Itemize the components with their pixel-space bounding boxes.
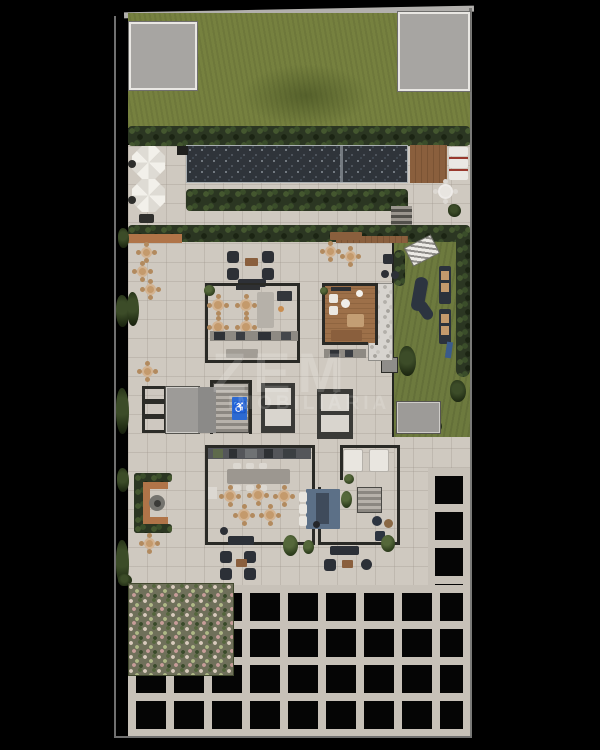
pouf [381,270,389,278]
counter-item [283,449,296,458]
chair [153,369,158,374]
chair [233,513,238,518]
dining-table [252,489,264,501]
chair [299,492,307,502]
chair [242,504,247,509]
chair [264,493,269,498]
chair [328,257,333,262]
coffee-table [342,560,353,568]
chair [443,179,448,184]
chair [233,485,241,491]
garden-right-hedge [456,231,470,377]
console [331,287,351,291]
pergola-frame [142,401,167,417]
pergola-column [428,468,470,587]
counter-item [213,449,223,458]
armchair [220,568,232,580]
armchair [383,254,393,264]
elevator-cab [265,388,291,405]
wall [205,542,315,545]
wheelchair-icon: ♿ [233,403,247,414]
pool-side-table [438,184,453,199]
wall [340,445,400,448]
chair [228,485,233,490]
step-bench [391,206,412,225]
console [236,285,260,290]
pool-bench [139,214,154,223]
chair [147,533,152,538]
chair [147,549,152,554]
ball [313,521,320,528]
chair [224,303,229,308]
dining-table [212,299,224,311]
armchair [262,251,274,263]
chair [356,254,361,259]
chair [242,521,247,526]
planter-pot [448,204,461,217]
chair [137,369,142,374]
chair [433,189,438,194]
bottom-boundary-wall [114,736,472,738]
pergola-frame [142,416,167,433]
chair [252,303,257,308]
plant [204,285,215,296]
dining-table [238,509,250,521]
side-table [128,160,136,168]
accessible-parking-sign: ♿ [232,397,247,420]
staircase [357,487,382,513]
chair [443,199,448,204]
chair [247,493,252,498]
chair [276,513,281,518]
pouf [372,516,382,526]
dining-table [224,490,236,502]
dining-table [240,299,252,311]
chair [224,325,229,330]
chair [148,295,153,300]
chair [256,501,261,506]
wall [322,283,378,286]
equipment-box [177,146,188,155]
chair [140,261,145,266]
coffee-table [236,559,247,567]
flower-bed [128,583,234,676]
counter-item [264,449,273,458]
chair [259,513,264,518]
chair [144,242,149,247]
chair [207,303,212,308]
appliance [214,332,225,340]
pouf [361,559,372,570]
wall [249,380,252,434]
elevator-cab [265,409,291,426]
massage-bed [343,449,363,472]
side-table [128,196,136,204]
garden-paving-strip [394,437,470,468]
games-table [316,493,329,524]
margin-plant [118,228,129,248]
cafe-table [345,251,356,262]
dining-table [264,509,276,521]
chair [140,277,145,282]
chair [145,361,150,366]
margin-plant [116,388,129,434]
roof-slab-top-right [398,12,470,91]
chair [256,484,261,489]
chair [453,189,458,194]
hedge-top-row [128,126,470,146]
chair [244,316,249,321]
elevator-cab [321,394,349,411]
counter-item [245,449,257,458]
cafe-table [144,538,155,549]
cafe-table [141,247,152,258]
chair [152,250,157,255]
chair [139,541,144,546]
chair [145,377,150,382]
lounger-cushion [441,314,449,323]
plant [320,287,328,295]
pool [186,145,408,183]
dining-table [278,490,290,502]
chair [228,502,233,507]
chair [148,269,153,274]
roof-slab-top-left [129,22,197,90]
floor-plan-canvas: ♿ ZEM IMOBILIÁRIA [0,0,600,750]
coffee-table [245,258,258,266]
left-boundary-wall [114,16,116,738]
chair [156,287,161,292]
plant [341,491,352,508]
fire-pit-center [154,500,161,507]
cafe-table [145,284,156,295]
bench [330,232,362,240]
margin-plant [117,468,129,492]
chair [155,541,160,546]
chair [140,287,145,292]
bush [283,535,298,556]
armchair [227,268,239,280]
wood-deck [410,145,447,183]
chair [299,516,307,526]
chair [244,294,249,299]
chair [290,494,295,499]
pergola-frame [142,386,167,402]
pouf [220,527,228,535]
kitchen-island [226,349,258,358]
chair [273,494,278,499]
pouf [384,519,393,528]
cafe-table [325,246,336,257]
daybed-tan [347,314,364,327]
chair [268,521,273,526]
chair [299,504,307,514]
chair [252,325,257,330]
chair [132,269,137,274]
wall [322,342,368,345]
chair [328,241,333,246]
garden-plant-right [450,380,466,402]
appliance [258,332,271,340]
pouf [391,271,399,279]
wall [375,283,378,345]
chair [148,279,153,284]
chair [336,249,341,254]
wall [205,360,300,363]
roof-slab-mid [166,387,199,433]
wall [397,445,400,545]
chair [282,502,287,507]
armchair [220,551,232,563]
roof-slab-mid-dark [198,387,216,433]
appliance [281,332,291,340]
garden-left-hedge [394,250,405,286]
lounger-cushion [441,283,449,292]
armchair-white [329,306,338,315]
island-counter [257,292,274,328]
armchair [244,568,256,580]
counter-item [229,449,237,458]
sofa [228,536,254,545]
cafe-table [142,366,153,377]
elevator-cab [321,415,349,432]
cafe-table [137,266,148,277]
sofa [330,546,359,555]
dining-long-table [227,469,290,484]
floor-lamp [278,306,284,312]
armchair [227,251,239,263]
terracotta-bench [143,517,168,524]
armchair [324,559,336,571]
chair [320,249,325,254]
margin-plant [127,292,139,326]
chair [340,254,345,259]
round-table-white [341,299,350,308]
bush [303,540,314,554]
chair [136,250,141,255]
sun-lounger [449,147,468,156]
chair [250,513,255,518]
bar-unit [277,291,292,301]
garden-mid-plants [399,346,416,376]
chair [282,485,287,490]
roof-slab-garden [397,402,440,433]
wood-table [331,330,362,341]
appliance [345,350,353,357]
armchair-white [329,294,338,303]
lounger-cushion [441,326,449,335]
chair [207,325,212,330]
lounger-cushion [441,271,449,280]
chair [216,294,221,299]
sphere-lamp [356,290,363,297]
side-table-white [208,487,217,499]
appliance [236,332,245,340]
chair [235,325,240,330]
chair [219,494,224,499]
chair [348,262,353,267]
hedge-u-bench [134,524,172,533]
sun-lounger [449,159,468,168]
chair [348,246,353,251]
terracotta-planter-strip [128,234,182,243]
chair [216,316,221,321]
chair [268,504,273,509]
appliance [330,350,339,357]
pool-planter-hedge [186,189,408,211]
plant [344,474,354,484]
chair [236,494,241,499]
pool-divider [340,146,343,182]
chair [235,303,240,308]
bush [381,535,395,552]
massage-bed [369,449,389,472]
sun-lounger [449,171,468,180]
